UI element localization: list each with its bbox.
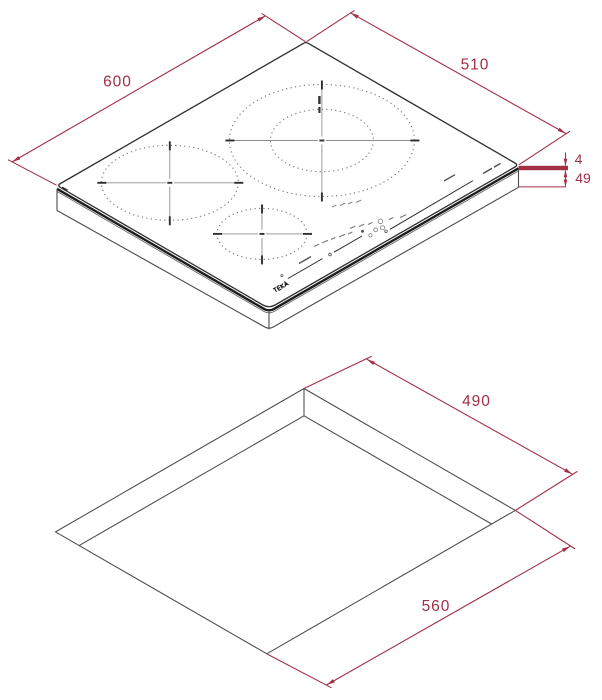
svg-text:4: 4 [575,151,583,167]
svg-text:49: 49 [575,170,591,186]
svg-text:490: 490 [462,393,491,410]
svg-text:600: 600 [103,74,132,91]
svg-text:560: 560 [422,598,451,615]
svg-text:510: 510 [461,57,490,74]
